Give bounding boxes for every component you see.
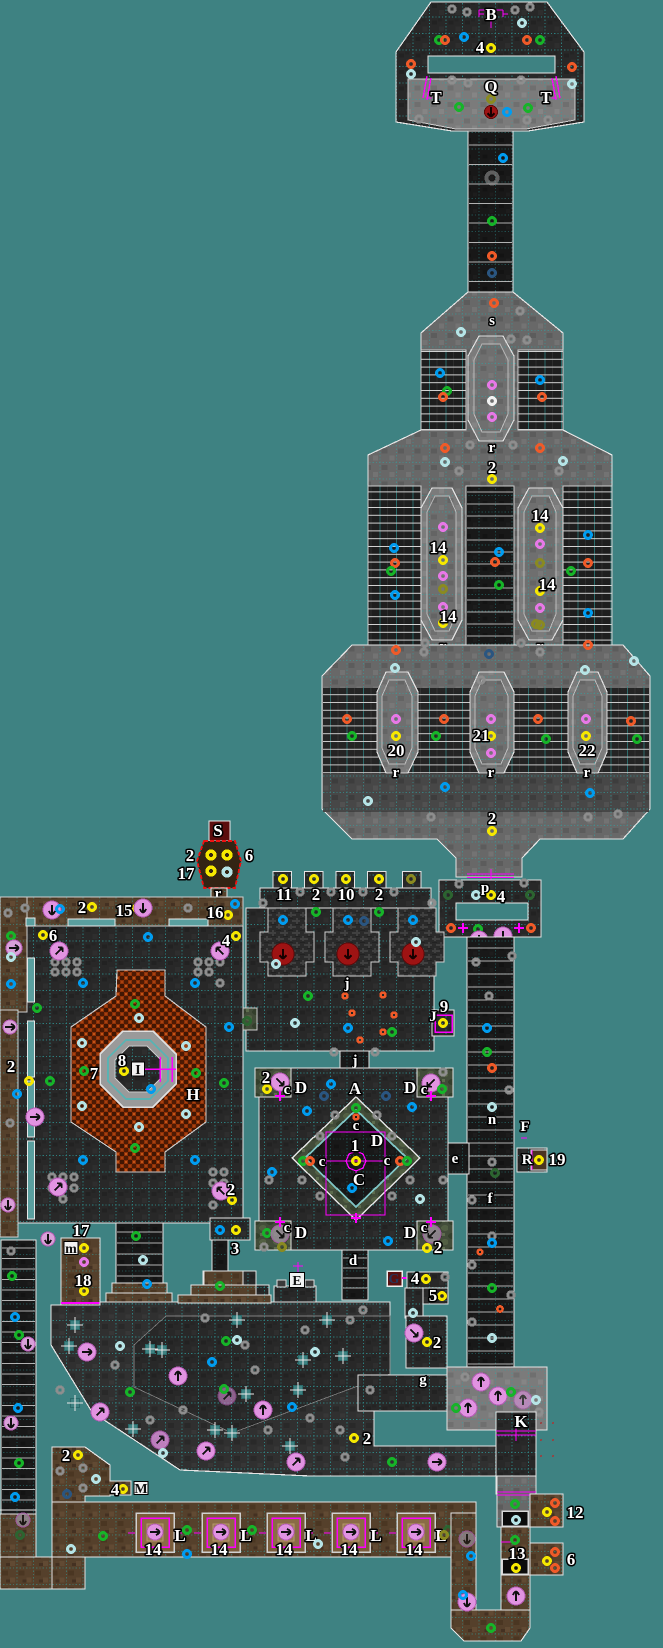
svg-text:c: c (284, 1220, 291, 1236)
svg-text:E: E (292, 1274, 301, 1289)
svg-text:c: c (319, 1154, 326, 1170)
svg-text:2: 2 (7, 1057, 16, 1076)
svg-text:K: K (514, 1412, 528, 1431)
svg-text:14: 14 (211, 1540, 229, 1559)
svg-text:2: 2 (78, 898, 87, 917)
svg-text:3: 3 (231, 1239, 240, 1258)
svg-text:11: 11 (276, 885, 292, 904)
svg-text:2: 2 (262, 1068, 271, 1087)
svg-text:4: 4 (222, 931, 231, 950)
svg-text:19: 19 (549, 1150, 566, 1169)
svg-text:18: 18 (75, 1271, 92, 1290)
svg-text:c: c (284, 1082, 291, 1098)
svg-text:n: n (488, 1112, 497, 1128)
svg-text:1: 1 (351, 1136, 360, 1155)
svg-text:14: 14 (430, 538, 448, 557)
svg-text:p: p (481, 880, 489, 896)
svg-text:14: 14 (532, 506, 550, 525)
svg-text:J: J (429, 1009, 437, 1025)
svg-text:14: 14 (145, 1540, 163, 1559)
svg-text:r: r (584, 765, 591, 781)
svg-text:c: c (384, 1153, 391, 1169)
svg-text:T: T (540, 88, 552, 107)
svg-text:16: 16 (207, 903, 224, 922)
svg-text:14: 14 (341, 1540, 359, 1559)
svg-text:Q: Q (484, 77, 497, 96)
svg-text:2: 2 (488, 809, 497, 828)
svg-text:g: g (419, 1372, 427, 1388)
svg-text:5: 5 (429, 1286, 438, 1305)
svg-text:4: 4 (411, 1269, 420, 1288)
svg-text:m: m (65, 1242, 77, 1257)
svg-text:4: 4 (476, 38, 485, 57)
svg-text:c: c (353, 1118, 360, 1134)
svg-text:2: 2 (434, 1238, 443, 1257)
svg-text:j: j (352, 1053, 358, 1069)
svg-text:10: 10 (338, 885, 355, 904)
svg-text:S: S (213, 821, 222, 840)
svg-text:17: 17 (73, 1221, 91, 1240)
svg-text:4: 4 (111, 1480, 120, 1499)
svg-text:c: c (421, 1082, 428, 1098)
svg-text:13: 13 (509, 1544, 526, 1563)
svg-text:9: 9 (440, 997, 449, 1016)
svg-text:j: j (344, 976, 350, 992)
svg-text:r: r (489, 440, 496, 456)
svg-text:14: 14 (539, 575, 557, 594)
svg-text:D: D (295, 1078, 307, 1097)
svg-text:I: I (135, 1063, 140, 1078)
svg-text:R: R (522, 1152, 533, 1168)
svg-text:r: r (488, 765, 495, 781)
svg-text:14: 14 (440, 607, 458, 626)
svg-text:2: 2 (363, 1429, 372, 1448)
svg-text:2: 2 (375, 885, 384, 904)
svg-text:6: 6 (567, 1550, 576, 1569)
svg-text:14: 14 (276, 1540, 294, 1559)
svg-text:s: s (489, 313, 495, 329)
svg-text:C: C (353, 1170, 365, 1189)
svg-text:2: 2 (62, 1446, 71, 1465)
svg-text:8: 8 (118, 1051, 127, 1070)
svg-text:e: e (452, 1151, 459, 1167)
svg-text:7: 7 (90, 1064, 99, 1083)
svg-text:r: r (393, 765, 400, 781)
svg-text:21: 21 (473, 726, 490, 745)
svg-text:D: D (404, 1223, 416, 1242)
svg-text:L: L (370, 1526, 381, 1545)
svg-text:G: G (389, 1272, 400, 1287)
svg-text:14: 14 (406, 1540, 424, 1559)
svg-text:6: 6 (245, 846, 254, 865)
svg-text:17: 17 (178, 864, 196, 883)
svg-text:d: d (349, 1253, 358, 1269)
svg-text:2: 2 (186, 846, 195, 865)
svg-text:T: T (430, 88, 442, 107)
svg-text:2: 2 (312, 885, 321, 904)
svg-text:D: D (404, 1078, 416, 1097)
svg-text:H: H (186, 1085, 199, 1104)
svg-text:c: c (421, 1220, 428, 1236)
svg-text:2: 2 (227, 1180, 236, 1199)
svg-text:6: 6 (49, 926, 58, 945)
svg-text:20: 20 (388, 741, 405, 760)
svg-text:12: 12 (567, 1503, 584, 1522)
svg-text:15: 15 (116, 901, 133, 920)
svg-text:22: 22 (579, 741, 596, 760)
svg-text:M: M (134, 1482, 147, 1497)
svg-text:F: F (520, 1119, 529, 1135)
svg-text:B: B (485, 5, 496, 24)
svg-text:A: A (349, 1079, 362, 1098)
svg-text:D: D (371, 1131, 383, 1150)
svg-text:2: 2 (433, 1333, 442, 1352)
svg-text:4: 4 (497, 887, 506, 906)
svg-text:D: D (295, 1223, 307, 1242)
